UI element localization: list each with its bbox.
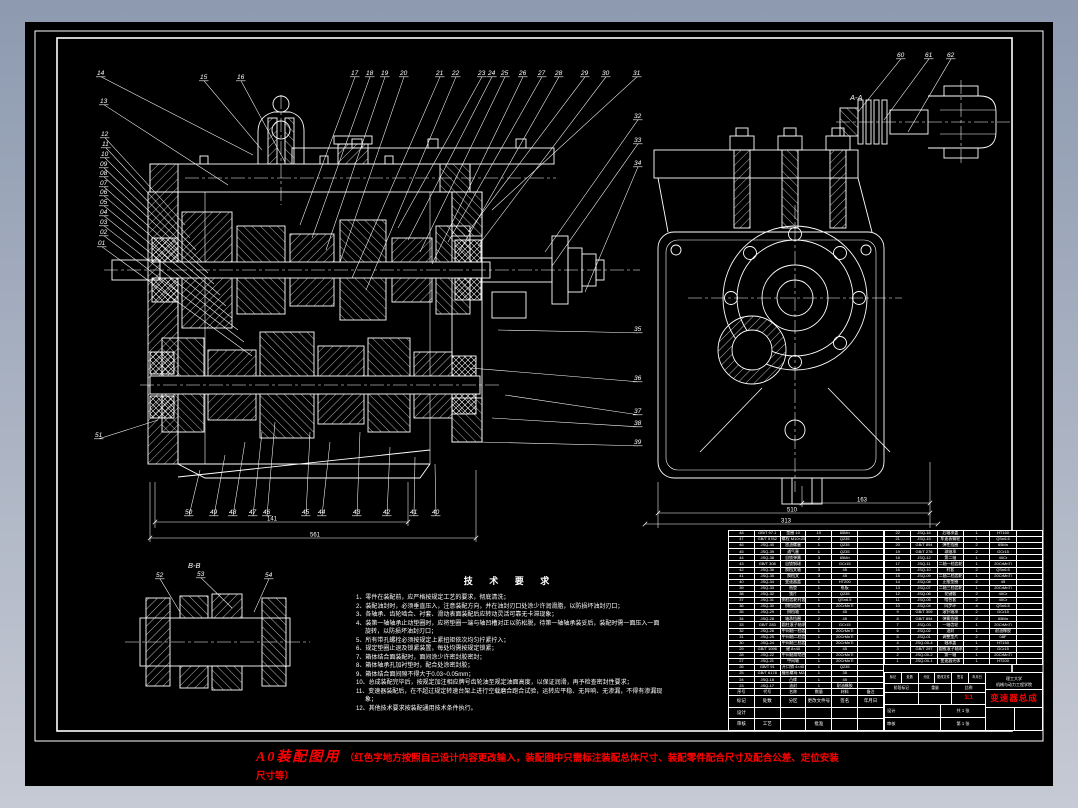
signer-label: 设计	[885, 705, 940, 718]
callout-number: 06	[100, 189, 108, 196]
dimension-value: 510	[787, 508, 798, 514]
scale-value: 1:1	[952, 693, 985, 704]
callout-number: 11	[102, 141, 109, 148]
callout-number: 16	[237, 74, 245, 81]
callout-number: 31	[633, 70, 641, 77]
callout-number: 38	[634, 420, 642, 427]
tech-requirements: 技 术 要 求 1、零件在装配前，应严格按规定工艺的要求，彻底清洗；2、装配油封…	[356, 574, 664, 713]
section-label-bb: B-B	[188, 561, 201, 570]
callout-number: 60	[897, 52, 905, 59]
sheet-total: 共 1 张	[941, 705, 985, 718]
callout-number: 14	[97, 70, 105, 77]
tech-requirement-item: 7、箱体结合面装配时，面间涂少许密封胶密封；	[356, 654, 664, 663]
callout-number: 34	[634, 160, 642, 167]
red-note: A0装配图用 （红色字地方按照自己设计内容更改输入，装配图中只需标注装配总体尺寸…	[256, 746, 846, 784]
callout-number: 29	[580, 70, 589, 77]
callout-number: 02	[100, 229, 108, 236]
bom-row: 审核工艺批准	[729, 719, 884, 731]
section-label-aa: A-A	[849, 93, 863, 102]
callout-number: 48	[229, 509, 237, 516]
sheet-number: 第 1 张	[941, 718, 985, 730]
tech-requirement-item: 10、总成装配完毕后，按规定加注相应牌号齿轮油至规定油面高度，以保证润滑，再予检…	[356, 679, 664, 688]
callout-number: 23	[477, 70, 486, 77]
callout-number: 30	[602, 70, 610, 77]
callout-number: 08	[100, 170, 108, 177]
callout-number: 12	[101, 131, 109, 138]
stage-label: 阶段标记	[885, 684, 918, 693]
tech-requirement-item: 5、所有带孔螺栓必须按规定上紧扭矩依次均匀拧紧拧入；	[356, 637, 664, 646]
callout-number: 04	[100, 209, 108, 216]
callout-number: 10	[101, 151, 109, 158]
tech-requirement-item: 1、零件在装配前，应严格按规定工艺的要求，彻底清洗；	[356, 594, 664, 603]
scale-label: 比例	[952, 684, 985, 693]
callout-number: 33	[634, 137, 642, 144]
callout-number: 26	[518, 70, 527, 77]
callout-number: 62	[947, 52, 955, 59]
bom-row: 设计	[729, 707, 884, 719]
dimension-value: 141	[267, 517, 278, 523]
tech-requirements-title: 技 术 要 求	[356, 574, 664, 587]
callout-number: 17	[351, 70, 359, 77]
bom-table-right: 22JSQ-16后轴承盖1HT15021JSQ-15车速表蜗轮1QSn6.520…	[884, 530, 1043, 665]
dimension-value: 163	[857, 498, 868, 504]
callout-number: 07	[100, 180, 108, 187]
callout-number: 15	[200, 74, 208, 81]
callout-number: 49	[210, 509, 218, 516]
callout-number: 05	[100, 199, 108, 206]
signer-label: 审核	[885, 718, 940, 730]
tech-requirement-item: 6、规定垫圈止退及锁紧装置，每处均需按规定锁紧；	[356, 645, 664, 654]
drawing-title: 变速器总成	[986, 690, 1042, 708]
callout-number: 03	[100, 219, 108, 226]
callout-number: 53	[197, 571, 205, 578]
callout-number: 52	[156, 572, 164, 579]
bom-row: 1JSQ-00-1变速器壳体1HT200	[885, 658, 1043, 664]
callout-number: 36	[634, 375, 642, 382]
callout-number: 20	[399, 70, 408, 77]
callout-number: 24	[487, 70, 496, 77]
red-note-headline: A0装配图用	[256, 750, 340, 765]
dimension-value: 561	[310, 533, 321, 539]
callout-number: 27	[537, 70, 546, 77]
callout-number: 35	[634, 326, 642, 333]
tech-requirement-item: 12、其他技术要求按装配通用技术条件执行。	[356, 705, 664, 714]
callout-number: 21	[435, 70, 444, 77]
red-note-body: （红色字地方按照自己设计内容更改输入，装配图中只需标注装配总体尺寸、装配零件配合…	[256, 753, 839, 782]
callout-number: 01	[98, 240, 106, 247]
tech-requirement-item: 3、各轴承、齿轮啮合、衬套、滑动表面装配后应转动灵活可靠无卡滞现象；	[356, 611, 664, 620]
tech-requirement-item: 4、装第一轴轴承止动垫圈时，应将垫圈一端与轴凹槽对正以防松脱，待第一轴轴承装妥后…	[356, 620, 664, 637]
title-block: 标记处数分区更改文件号签名年月日 阶段标记 重量 比例 1:1 设计审核 共 1…	[884, 672, 1043, 731]
callout-number: 61	[925, 52, 933, 59]
title-block-school: 理工大学 机械与动力工程学院	[986, 673, 1042, 690]
callout-number: 47	[249, 509, 257, 516]
cad-drawing-page: { "palette":{"background_top":"#8d9ab0",…	[0, 0, 1078, 808]
callout-number: 50	[185, 509, 193, 516]
bom-row: 标记处数分区更改文件号签名年月日	[729, 696, 884, 708]
tech-requirement-item: 9、箱体结合面间隙不得大于0.03~0.05mm；	[356, 671, 664, 680]
signature-table: 标记处数分区更改文件号签名年月日设计审核工艺批准	[728, 695, 884, 731]
callout-number: 18	[366, 70, 374, 77]
callout-number: 13	[100, 98, 108, 105]
callout-number: 54	[265, 572, 273, 579]
tech-requirement-item: 11、变速器装配后，在不超过规定转速台架上进行空载磨合跑合试验，运转应平稳、无异…	[356, 688, 664, 705]
tech-requirement-item: 2、装配油封时，必须垂直压入，注意装配方向，并在油封刃口处涂少许润滑脂，以防损坏…	[356, 603, 664, 612]
callout-number: 39	[634, 439, 642, 446]
callout-number: 25	[500, 70, 509, 77]
weight-label: 重量	[919, 684, 952, 693]
dimension-value: 313	[781, 519, 792, 525]
callout-number: 28	[554, 70, 563, 77]
callout-number: 19	[381, 70, 389, 77]
tech-requirement-item: 8、箱体轴承孔加衬垫时，配合处涂密封胶；	[356, 662, 664, 671]
bom-table-left: 48GB/T 97.1垫圈 101065Mn47GB/T 5782螺栓 M10×…	[728, 530, 884, 696]
callout-number: 09	[100, 161, 108, 168]
callout-number: 37	[634, 408, 642, 415]
callout-number: 32	[634, 113, 642, 120]
callout-number: 44	[318, 509, 326, 516]
callout-number: 22	[451, 70, 460, 77]
